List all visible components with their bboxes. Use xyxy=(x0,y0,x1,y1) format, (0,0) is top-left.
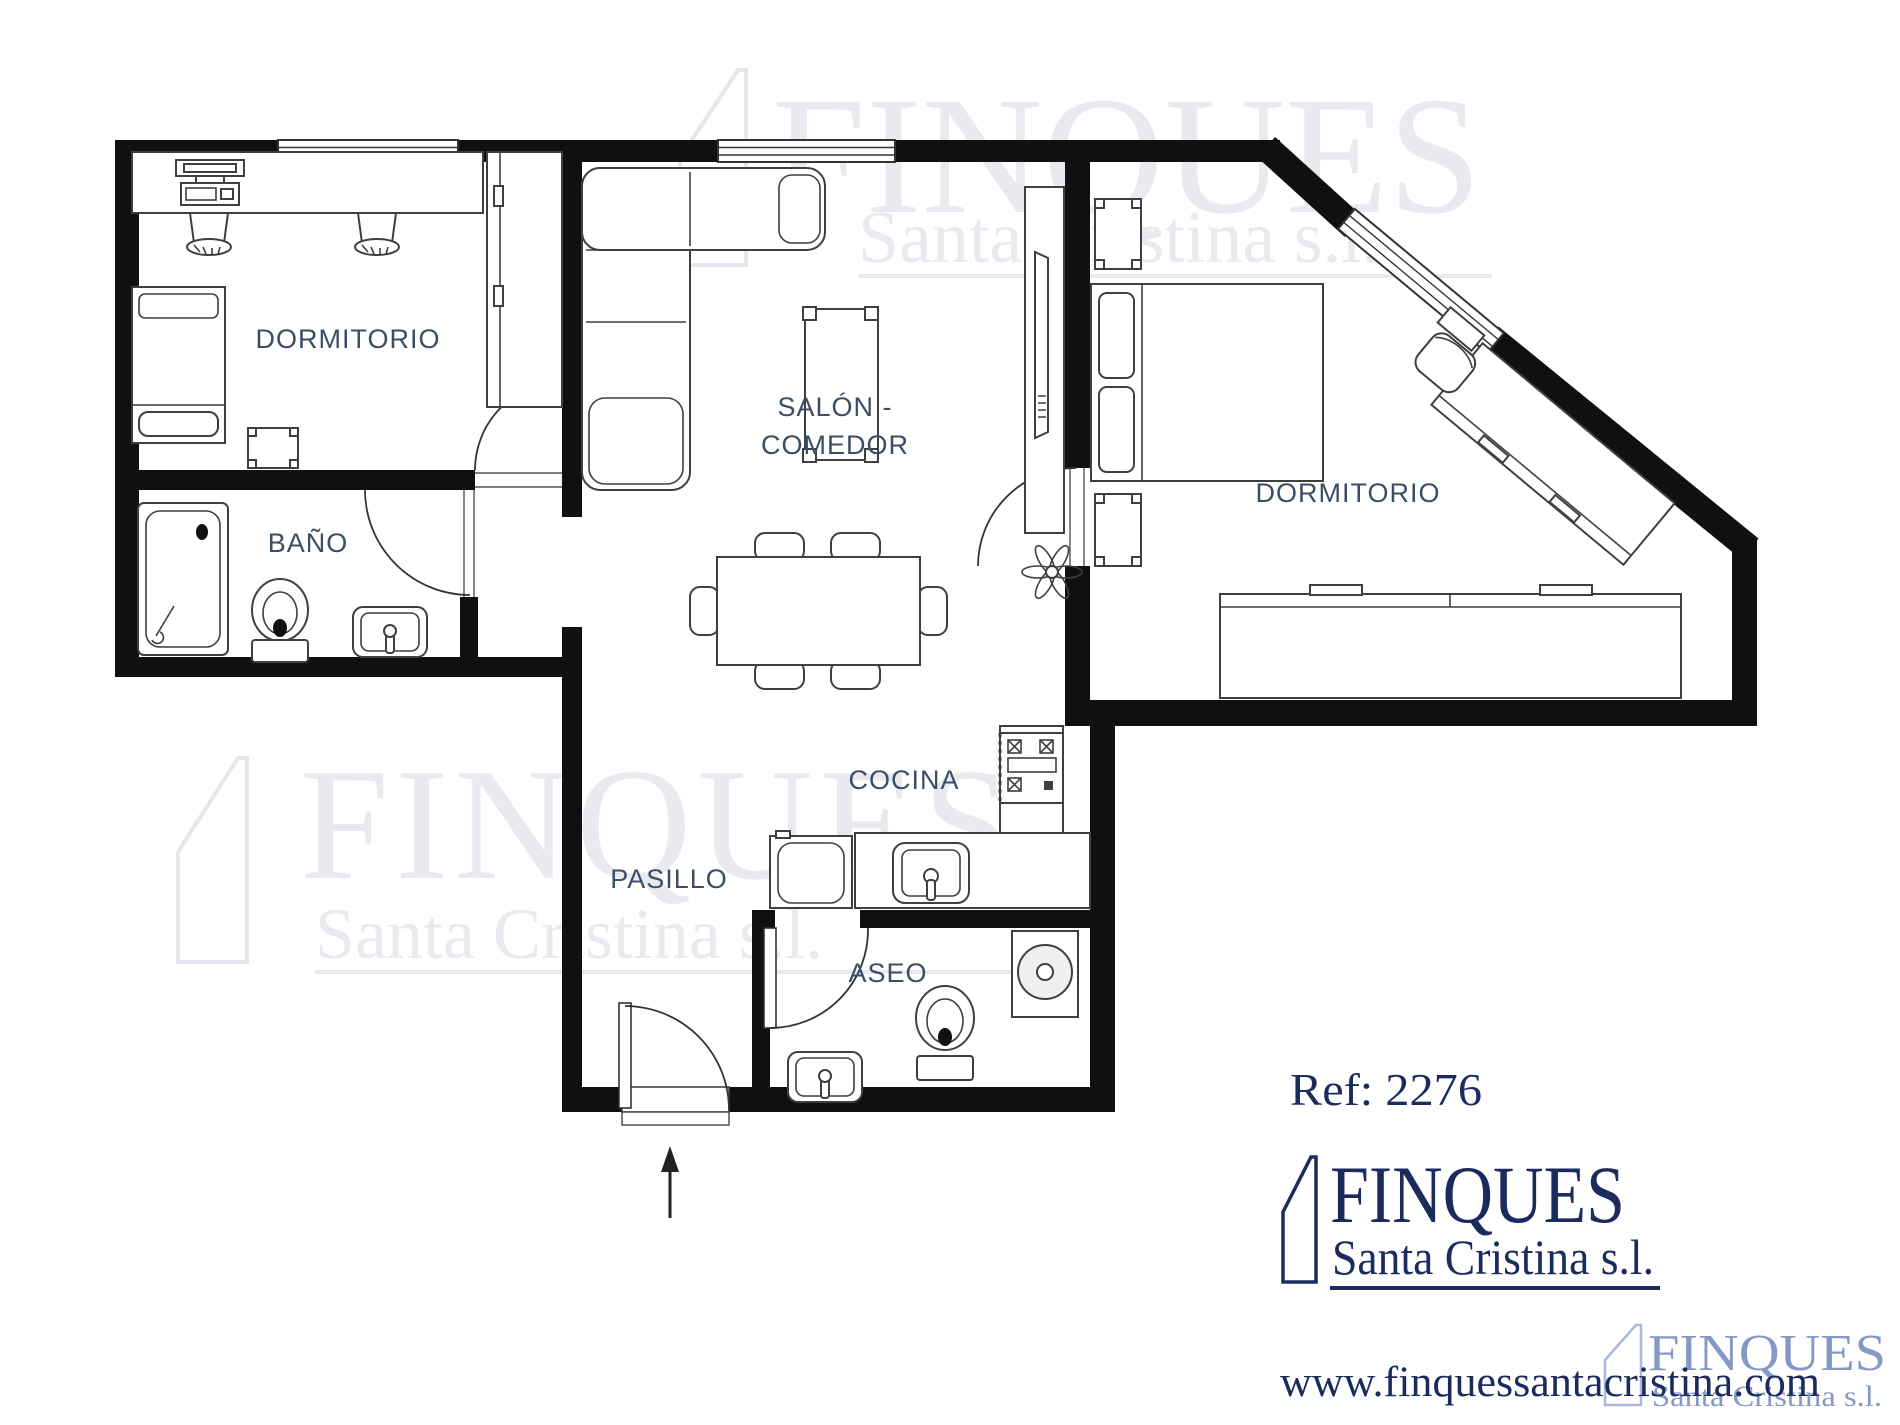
tv-cabinet xyxy=(1025,187,1064,533)
wall-bano-bottom xyxy=(115,657,582,677)
wall-aseo-top-1 xyxy=(752,910,775,928)
reference-number: Ref: 2276 xyxy=(1290,1064,1482,1115)
desk-chair-1 xyxy=(187,213,231,255)
wall-divider-left-upper xyxy=(562,140,582,517)
dresser xyxy=(1220,585,1681,698)
floor-plan-page: FINQUES Santa Cristina s.l. FINQUES Sant… xyxy=(0,0,1900,1425)
website-url: www.finquessantacristina.com xyxy=(1280,1359,1820,1406)
label-cocina: COCINA xyxy=(848,765,959,795)
dining-table xyxy=(717,557,920,665)
computer-icon xyxy=(176,160,244,205)
wall-bottom-2 xyxy=(729,1087,1115,1112)
logo-company-subtitle: Santa Cristina s.l. xyxy=(1332,1229,1654,1285)
label-dormitorio-right: DORMITORIO xyxy=(1256,478,1441,508)
furniture-bano xyxy=(138,503,427,662)
door-entrance xyxy=(619,1003,729,1125)
floor-plan-svg: FINQUES Santa Cristina s.l. FINQUES Sant… xyxy=(0,0,1900,1425)
stove xyxy=(1000,733,1063,803)
bed-double xyxy=(1091,284,1323,481)
wall-aseo-top-2 xyxy=(860,910,1115,928)
window-salon xyxy=(718,140,895,162)
dining-table-set xyxy=(690,533,947,689)
logo-building-icon xyxy=(1283,1157,1316,1282)
bed-single xyxy=(132,287,225,443)
nightstand-bottom xyxy=(1095,494,1141,566)
dining-chair xyxy=(918,587,947,635)
kitchen-counter xyxy=(855,833,1090,908)
wall-dorm1-bottom xyxy=(115,470,475,490)
bathtub xyxy=(138,503,228,655)
door-bano xyxy=(365,490,474,597)
label-bano: BAÑO xyxy=(268,527,349,558)
wall-right-dorm2 xyxy=(1732,540,1757,726)
nightstand xyxy=(248,428,298,468)
wall-bano-right-stub xyxy=(460,597,478,661)
kitchen-sink xyxy=(893,843,969,903)
toilet xyxy=(916,986,974,1080)
wall-pasillo-left xyxy=(562,627,582,1112)
sink xyxy=(353,607,427,657)
desk-chair-2 xyxy=(355,213,399,255)
wardrobe xyxy=(487,152,562,407)
label-salon-line2: COMEDOR xyxy=(761,430,909,460)
furniture-dorm1 xyxy=(132,152,562,468)
wall-dorm2-bottom xyxy=(1065,700,1757,726)
wall-divider-right-upper xyxy=(1065,158,1090,468)
toilet xyxy=(252,579,308,662)
entrance-arrow xyxy=(661,1146,679,1218)
wall-bottom-1 xyxy=(562,1087,622,1112)
washing-machine xyxy=(1012,931,1078,1017)
logo-company-name: FINQUES xyxy=(1330,1149,1625,1240)
kitchen-appliance xyxy=(770,831,852,908)
watermark-building-icon xyxy=(178,758,247,962)
label-aseo: ASEO xyxy=(848,958,927,988)
nightstand-top xyxy=(1095,199,1141,269)
furniture-aseo xyxy=(788,931,1078,1102)
label-salon-line1: SALÓN - xyxy=(777,391,892,422)
label-dormitorio-left: DORMITORIO xyxy=(256,324,441,354)
label-pasillo: PASILLO xyxy=(610,864,728,894)
sink xyxy=(788,1052,862,1102)
dining-chair xyxy=(690,587,719,635)
